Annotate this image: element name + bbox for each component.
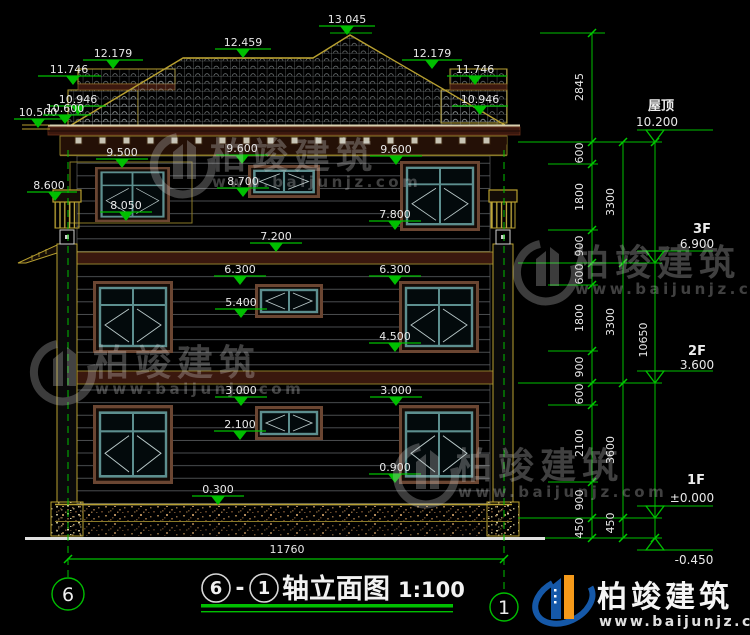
title-scale: 1:100 <box>398 578 465 602</box>
level-3f-label: 3F <box>693 222 711 237</box>
elevation-label: 8.600 <box>33 179 65 192</box>
elevation-drawing: 13.045 12.459 12.179 12.179 11.746 11.74… <box>0 0 750 635</box>
elevation-label: 2.100 <box>224 418 256 431</box>
level-1f-label: 1F <box>687 473 705 488</box>
plinth <box>55 505 512 537</box>
level-roof: 屋顶 10.200 <box>636 99 713 142</box>
title-underline-thin <box>201 611 453 612</box>
elevation-label: 11.746 <box>456 63 495 76</box>
watermark-url: www.baijunjz.com <box>212 173 421 191</box>
window-2f-right <box>401 283 478 352</box>
cad-elevation-screenshot: 13.045 12.459 12.179 12.179 11.746 11.74… <box>0 0 750 635</box>
level-1f-value: ±0.000 <box>670 491 714 505</box>
dim-fine-0: 600 <box>573 143 586 164</box>
dim-total-width: 11760 <box>270 543 305 556</box>
elevation-label: 7.800 <box>379 208 411 221</box>
watermark-url: www.baijunjz.com <box>95 380 304 398</box>
window-1f-center <box>257 408 322 439</box>
grid-bubble-6-number: 6 <box>62 584 74 606</box>
grid-bubble-1-number: 1 <box>498 597 510 619</box>
elevation-mark-12179-left: 12.179 <box>83 47 143 69</box>
watermark-brand: 柏竣建筑 <box>93 343 261 384</box>
dim-fine-1: 1800 <box>573 183 586 211</box>
dim-fine-6: 600 <box>573 384 586 405</box>
dim-floor-0: 3300 <box>604 188 617 216</box>
elevation-label: 9.500 <box>106 146 138 159</box>
elevation-mark-12179-right: 12.179 <box>402 47 462 69</box>
pilaster-right-hatch <box>491 202 515 228</box>
pilaster-left-hatch <box>55 202 79 228</box>
dim-fine-9: 450 <box>573 518 586 539</box>
footer-logo-brand: 柏竣建筑 <box>597 580 733 615</box>
level-minus-0450: -0.450 <box>637 538 713 567</box>
dim-roof-height: 2845 <box>573 73 586 101</box>
level-roof-label: 屋顶 <box>648 99 674 114</box>
belt-course-3f <box>63 252 497 264</box>
title-axis-start: 6 <box>210 578 223 599</box>
window-2f-center <box>257 286 322 317</box>
watermark-url: www.baijunjz.com <box>575 280 750 298</box>
drawing-title: 6 - 1 轴立面图 1:100 <box>201 573 465 612</box>
watermark-brand: 柏竣建筑 <box>573 243 741 284</box>
elevation-label: 10.600 <box>46 102 85 115</box>
window-1f-left <box>95 407 172 483</box>
elevation-label: 5.400 <box>225 296 257 309</box>
watermark-brand: 柏竣建筑 <box>210 136 378 177</box>
elevation-mark-13045: 13.045 <box>319 13 375 35</box>
roof-right-wing-fascia <box>450 84 507 90</box>
dim-floor-3: 450 <box>604 513 617 534</box>
dim-fine-4: 1800 <box>573 304 586 332</box>
elevation-label: 6.300 <box>379 263 411 276</box>
dim-fine-5: 900 <box>573 357 586 378</box>
elevation-label: 9.600 <box>380 143 412 156</box>
title-axis-end: 1 <box>258 578 271 599</box>
plinth-upper-speckle <box>55 506 512 521</box>
footer-logo-building-orange <box>564 575 574 619</box>
plinth-lower-speckle <box>55 523 512 536</box>
window-2f-left <box>95 283 172 352</box>
level-minus-0450-value: -0.450 <box>675 553 714 567</box>
pilaster-right-capital <box>489 190 517 202</box>
elevation-mark-12459: 12.459 <box>215 36 271 58</box>
footer-logo-swoosh-icon <box>528 569 600 632</box>
watermark-brand: 柏竣建筑 <box>456 446 624 487</box>
elevation-label: 0.300 <box>202 483 234 496</box>
canopy-left <box>18 245 57 263</box>
elevation-label: 12.179 <box>413 47 452 60</box>
title-underline-thick <box>201 604 453 608</box>
elevation-label: 11.746 <box>50 63 89 76</box>
footer-logo: 柏竣建筑 www.baijunjz.com <box>528 569 750 632</box>
elevation-label: 10.946 <box>461 93 500 106</box>
level-roof-value: 10.200 <box>636 115 678 129</box>
dim-total-height: 10650 <box>637 323 650 358</box>
title-separator: - <box>235 576 244 601</box>
elevation-label: 12.459 <box>224 36 263 49</box>
level-2f-label: 2F <box>688 344 706 359</box>
elevation-label: 3.000 <box>380 384 412 397</box>
title-text: 轴立面图 <box>282 573 390 605</box>
level-2f-value: 3.600 <box>680 358 714 372</box>
elevation-label: 4.500 <box>379 330 411 343</box>
footer-logo-url: www.baijunjz.com <box>599 614 750 630</box>
watermark-url: www.baijunjz.com <box>458 483 667 501</box>
watermark-right: 柏竣建筑 www.baijunjz.com <box>517 243 750 301</box>
elevation-label: 6.300 <box>224 263 256 276</box>
elevation-label: 12.179 <box>94 47 133 60</box>
elevation-label: 13.045 <box>328 13 367 26</box>
elevation-label: 7.200 <box>260 230 292 243</box>
dim-floor-1: 3300 <box>604 308 617 336</box>
elevation-label: 8.050 <box>110 199 142 212</box>
